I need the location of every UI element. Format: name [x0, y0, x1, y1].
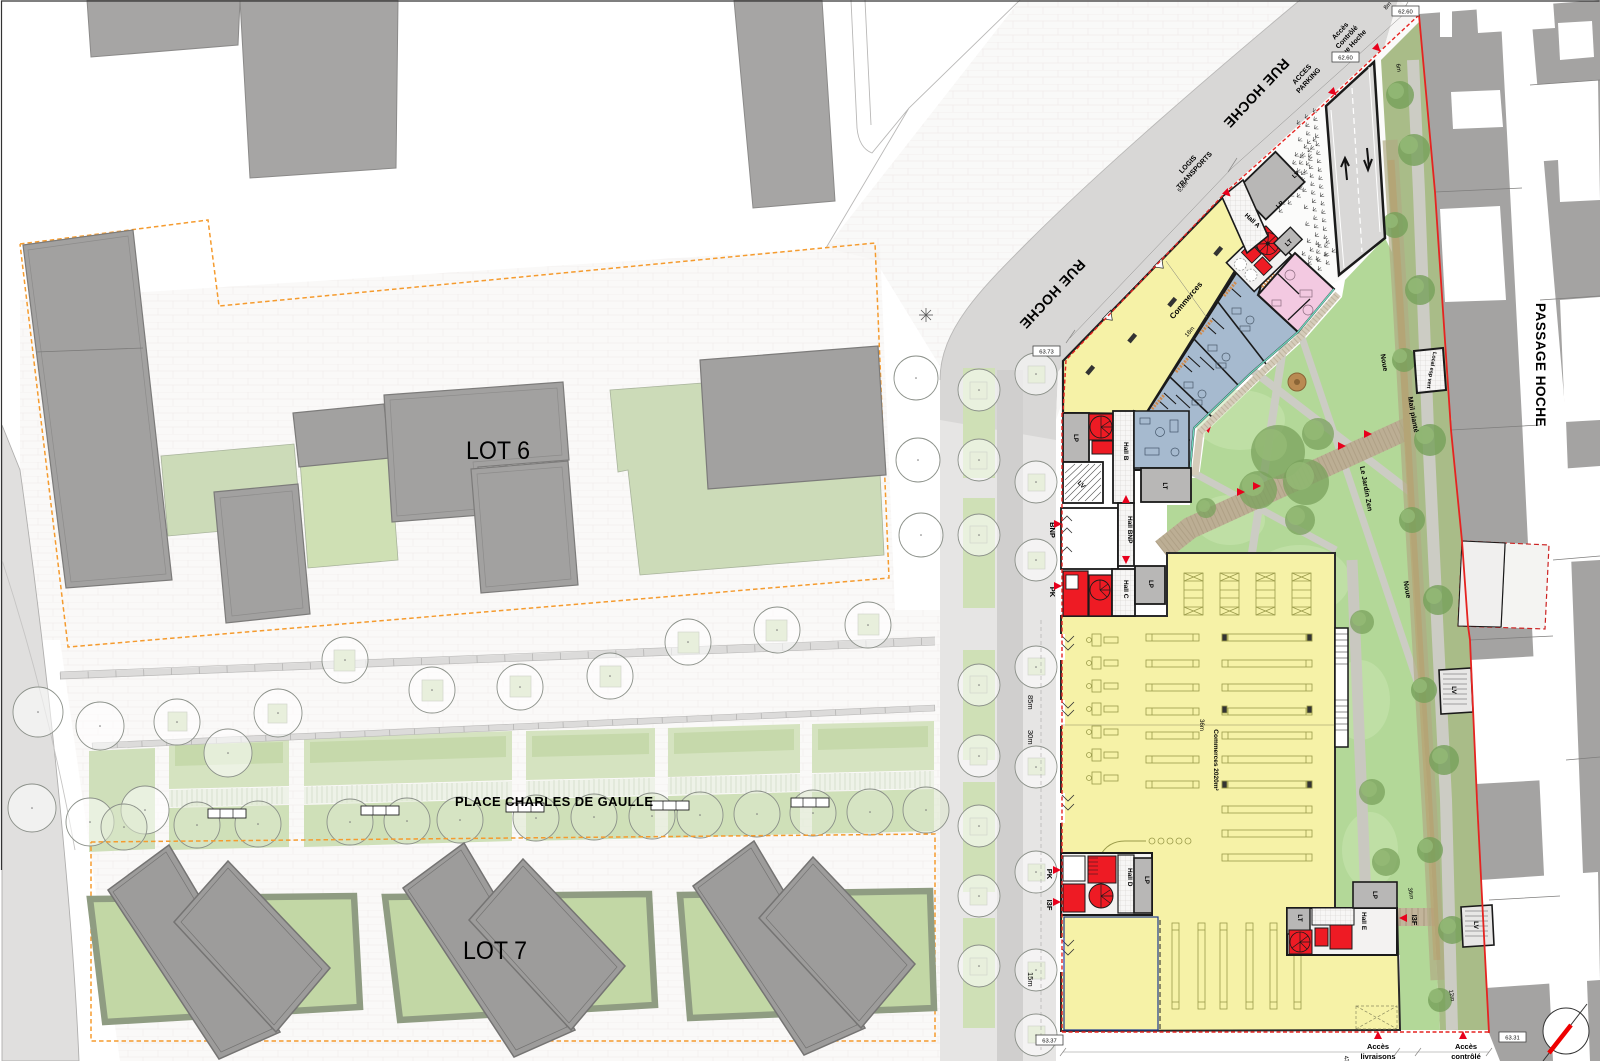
- svg-text:Accès: Accès: [1455, 1042, 1477, 1051]
- svg-text:LP: LP: [1147, 580, 1153, 588]
- svg-text:15m: 15m: [1026, 972, 1035, 987]
- svg-text:Commerces 2020m²: Commerces 2020m²: [1212, 729, 1219, 791]
- svg-text:LT: LT: [1161, 483, 1167, 490]
- svg-text:30m: 30m: [1026, 730, 1035, 745]
- svg-text:LT: LT: [1296, 914, 1303, 921]
- svg-text:Hall D: Hall D: [1126, 868, 1133, 887]
- svg-text:PK: PK: [1045, 869, 1054, 880]
- svg-text:I3F: I3F: [1410, 915, 1419, 926]
- svg-text:62.60: 62.60: [1338, 56, 1353, 62]
- svg-text:85m: 85m: [1026, 695, 1035, 710]
- svg-text:LP: LP: [1143, 876, 1149, 884]
- svg-text:LP: LP: [1072, 434, 1078, 442]
- svg-text:Hall C: Hall C: [1122, 580, 1129, 599]
- svg-text:62.60: 62.60: [1398, 10, 1413, 16]
- svg-text:I3F: I3F: [1045, 900, 1054, 911]
- svg-text:Hall E: Hall E: [1360, 912, 1367, 931]
- svg-text:contrôlé: contrôlé: [1451, 1052, 1481, 1061]
- svg-text:LP: LP: [1371, 891, 1377, 899]
- svg-text:livraisons: livraisons: [1360, 1052, 1395, 1061]
- svg-text:PLACE CHARLES DE GAULLE: PLACE CHARLES DE GAULLE: [455, 794, 653, 809]
- svg-text:PASSAGE HOCHE: PASSAGE HOCHE: [1533, 303, 1548, 427]
- svg-text:36m: 36m: [1198, 719, 1204, 731]
- svg-text:Accès: Accès: [1367, 1042, 1389, 1051]
- svg-text:LV: LV: [1472, 921, 1479, 929]
- svg-text:Hall BNP: Hall BNP: [1126, 516, 1133, 544]
- svg-text:63.37: 63.37: [1042, 1039, 1057, 1045]
- svg-text:43m: 43m: [1342, 1055, 1350, 1061]
- svg-text:63.31: 63.31: [1505, 1036, 1520, 1042]
- svg-text:63.73: 63.73: [1039, 350, 1054, 356]
- svg-text:Hall B: Hall B: [1122, 442, 1129, 461]
- svg-text:LOT 6: LOT 6: [466, 437, 530, 465]
- svg-text:LV: LV: [1450, 686, 1457, 694]
- svg-text:LOT 7: LOT 7: [463, 937, 527, 965]
